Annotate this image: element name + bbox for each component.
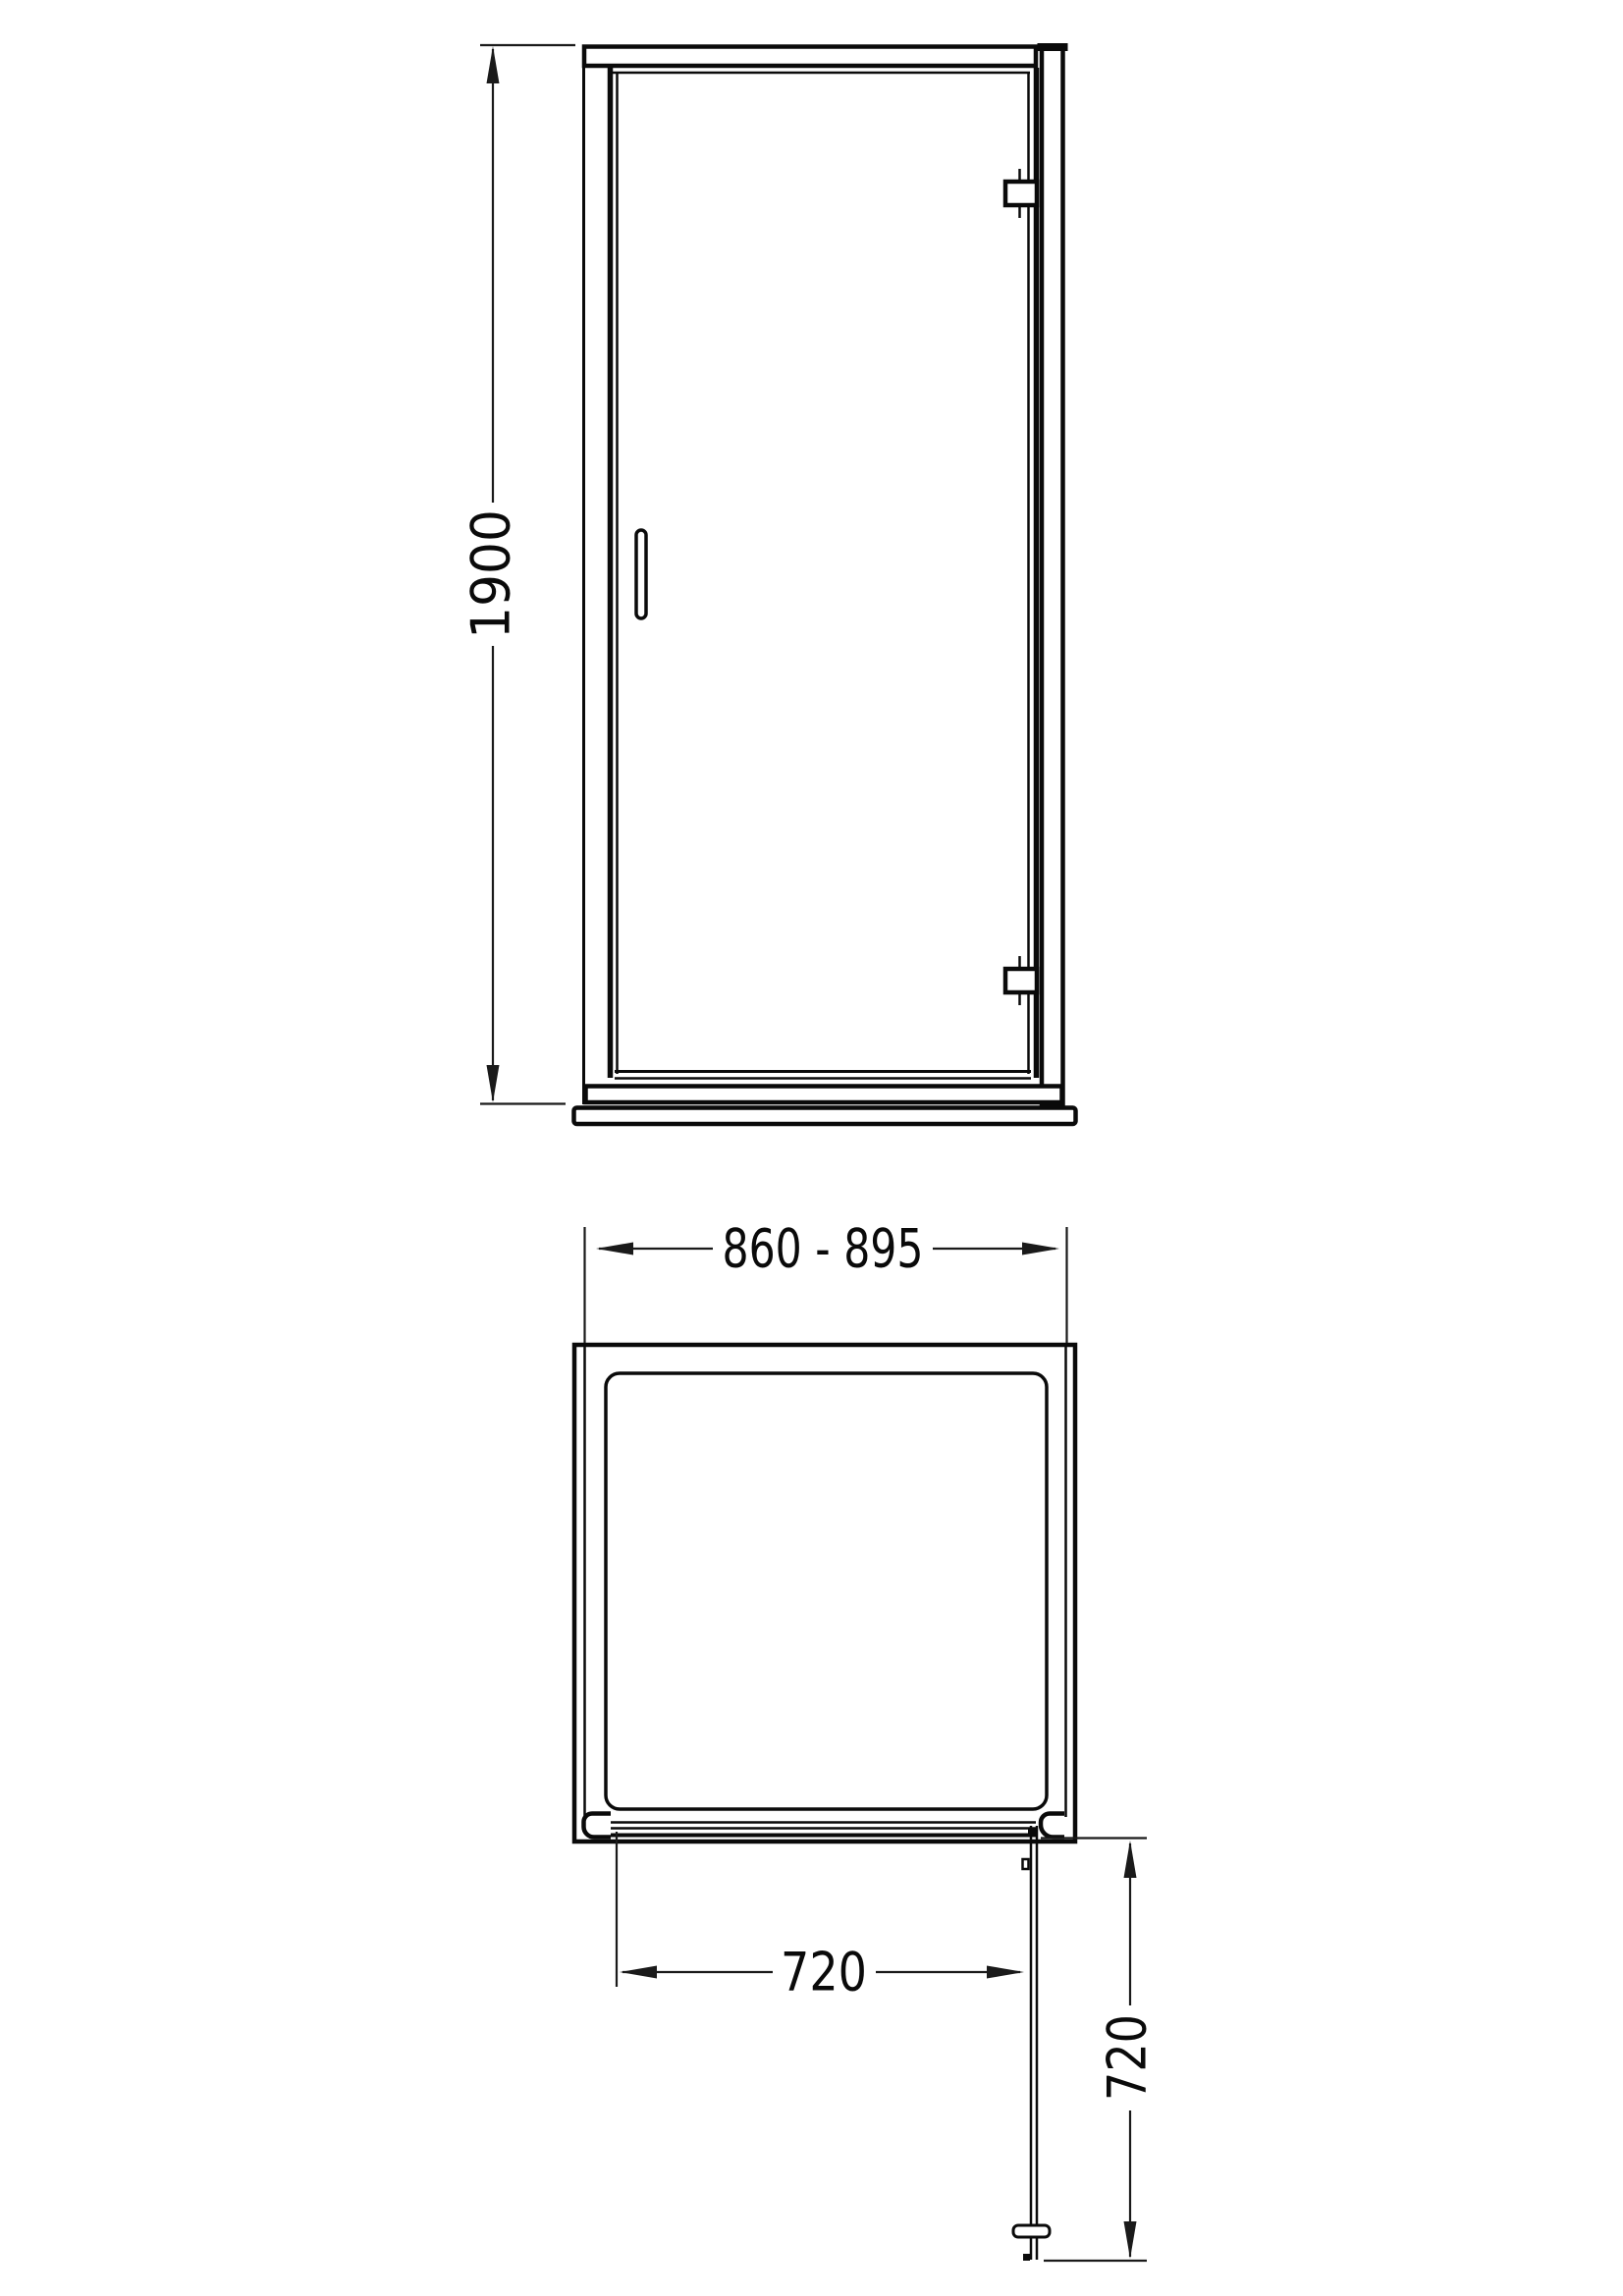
arrowhead-down [487,1065,500,1102]
plan-view: 860 - 895 720 720 [574,1218,1159,2262]
top-hinge [1005,182,1037,205]
width-dimension-860-895: 860 - 895 [585,1218,1067,1344]
right-profile-cap [1038,43,1068,51]
hinge-bracket-stub [1023,1859,1029,1869]
projection-dimension-label: 720 [1097,2014,1159,2101]
arrowhead-right [1022,1243,1059,1255]
left-wall-profile-plan [584,1814,612,1838]
height-dimension-1900: 1900 [460,45,576,1104]
opening-dimension-720: 720 [617,1832,1024,2003]
height-dimension-label: 1900 [460,509,522,639]
arrowhead-right [987,1966,1024,1979]
technical-drawing: 1900 [0,0,1623,2296]
right-hinge-profile [1042,47,1063,1104]
projection-dimension-720: 720 [1041,1839,1159,2262]
bottom-hinge [1005,969,1037,992]
width-dimension-label: 860 - 895 [723,1218,924,1280]
arrowhead-left [620,1966,657,1979]
bottom-rail [586,1087,1062,1103]
front-elevation-view: 1900 [460,43,1076,1124]
open-door-plan [1013,1826,1050,2261]
arrowhead-up [487,46,500,83]
door-bottom-cap [1023,2254,1030,2261]
arrowhead-up [1124,1841,1137,1878]
door-handle [636,530,646,618]
door-handle-plan [1013,2225,1050,2237]
right-wall-profile-plan [1041,1814,1064,1838]
shower-tray [574,1108,1076,1125]
arrowhead-down [1124,2221,1137,2259]
opening-dimension-label: 720 [781,1942,867,2003]
shower-tray-plan [606,1373,1047,1809]
top-rail [584,47,1036,67]
arrowhead-left [596,1243,633,1255]
